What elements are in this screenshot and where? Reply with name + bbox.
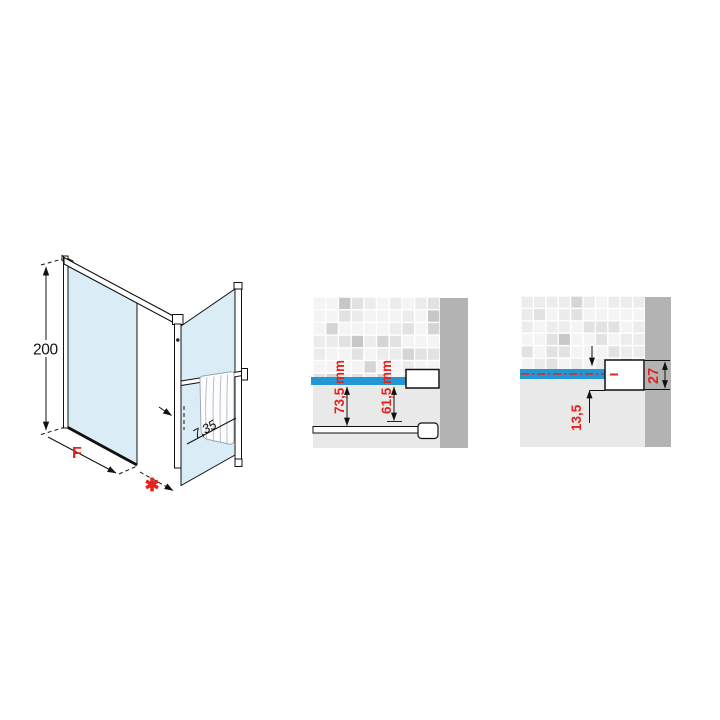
asterisk-marker: ✱	[144, 475, 159, 495]
tile	[534, 334, 545, 345]
tile	[571, 309, 582, 320]
tile	[428, 298, 439, 309]
mosaic-tiles	[522, 297, 645, 370]
tile	[534, 322, 545, 333]
post-profile	[175, 324, 182, 468]
tile	[596, 309, 607, 320]
wall-fixing-detail-diagram: 73,5 mm 61,5 mm	[310, 295, 470, 453]
tile	[403, 310, 414, 321]
dim-offset-label: 13,5	[569, 404, 584, 431]
tile	[314, 336, 325, 347]
tile	[390, 336, 401, 347]
tile	[365, 349, 376, 360]
tile	[621, 322, 632, 333]
tile	[365, 298, 376, 309]
tile	[390, 349, 401, 360]
tile	[547, 346, 558, 357]
tile	[415, 349, 426, 360]
dim-label-inner: 61,5 mm	[379, 360, 394, 414]
tile	[609, 334, 620, 345]
tile	[584, 309, 595, 320]
tile	[571, 322, 582, 333]
dim-label-outer: 73,5 mm	[332, 360, 347, 414]
tile	[314, 323, 325, 334]
tile	[365, 310, 376, 321]
tile	[428, 336, 439, 347]
extension-dimension: ✱	[140, 472, 173, 495]
tile	[571, 346, 582, 357]
tile	[559, 346, 570, 357]
tile	[547, 309, 558, 320]
tile	[314, 361, 325, 372]
screw-dot	[176, 338, 179, 341]
tile	[633, 334, 644, 345]
tile	[584, 334, 595, 345]
tile	[377, 336, 388, 347]
tile	[621, 297, 632, 308]
width-extension-dash	[119, 467, 136, 475]
depth-arrow	[159, 407, 172, 416]
tile	[390, 323, 401, 334]
lower-panel-end-cap	[418, 423, 438, 439]
tile	[559, 322, 570, 333]
tile	[633, 346, 644, 357]
tile	[584, 359, 595, 370]
towel-bar-bracket	[242, 369, 248, 381]
tile	[377, 349, 388, 360]
tile	[314, 310, 325, 321]
tile	[596, 334, 607, 345]
tile	[326, 349, 337, 360]
tile	[547, 359, 558, 370]
tile	[621, 346, 632, 357]
tile	[609, 346, 620, 357]
tile	[339, 323, 350, 334]
tile	[415, 298, 426, 309]
back-post-foot	[235, 459, 242, 467]
tile	[584, 297, 595, 308]
tile	[522, 322, 533, 333]
tile	[390, 298, 401, 309]
tile	[415, 336, 426, 347]
extension-arrow	[167, 487, 173, 491]
tile	[609, 297, 620, 308]
tile	[326, 298, 337, 309]
tile	[352, 349, 363, 360]
tile	[403, 336, 414, 347]
tile	[571, 359, 582, 370]
tile	[522, 359, 533, 370]
tile	[596, 297, 607, 308]
back-post-cap	[234, 283, 242, 290]
tile	[559, 334, 570, 345]
tile	[522, 297, 533, 308]
tile	[377, 310, 388, 321]
tile	[314, 298, 325, 309]
tile	[390, 310, 401, 321]
height-dim-label: 200	[33, 342, 58, 359]
tile	[609, 309, 620, 320]
tile	[534, 297, 545, 308]
tile	[326, 323, 337, 334]
width-dim-label: F	[72, 445, 82, 462]
tile	[339, 336, 350, 347]
tile	[547, 322, 558, 333]
tile	[584, 322, 595, 333]
tile	[596, 346, 607, 357]
tile	[339, 310, 350, 321]
tile	[352, 361, 363, 372]
height-dimension: 200	[32, 259, 64, 435]
tile	[621, 309, 632, 320]
tile	[596, 322, 607, 333]
tile	[352, 298, 363, 309]
tile	[633, 297, 644, 308]
diagram-canvas: 200	[0, 0, 720, 720]
tile	[314, 349, 325, 360]
tile	[609, 322, 620, 333]
tile	[547, 297, 558, 308]
tile	[415, 323, 426, 334]
tile	[365, 323, 376, 334]
tile	[571, 334, 582, 345]
tile	[365, 336, 376, 347]
tile	[534, 309, 545, 320]
wall-section	[440, 298, 468, 448]
tile	[377, 323, 388, 334]
dim-profile-label: 27	[646, 368, 662, 384]
tile	[339, 298, 350, 309]
tile	[352, 310, 363, 321]
tile	[403, 323, 414, 334]
tile	[352, 336, 363, 347]
tile	[522, 309, 533, 320]
rail-end-cap	[173, 315, 184, 325]
tile	[428, 310, 439, 321]
extension-line-top	[41, 259, 64, 266]
profile-detail-diagram: 13,5 27	[518, 294, 683, 452]
wall-profile-left	[64, 256, 69, 428]
tile	[633, 309, 644, 320]
tile	[415, 310, 426, 321]
lower-panel-bar	[313, 427, 418, 434]
tile	[377, 298, 388, 309]
isometric-shower-diagram: 200	[20, 230, 280, 515]
tile	[522, 346, 533, 357]
wall-profile-box	[406, 370, 439, 389]
tile	[559, 309, 570, 320]
tile	[633, 322, 644, 333]
tile	[352, 323, 363, 334]
glass-door-panel	[62, 256, 137, 466]
door-post	[175, 324, 182, 468]
tile	[559, 359, 570, 370]
tile	[403, 349, 414, 360]
tile	[326, 336, 337, 347]
tile	[534, 346, 545, 357]
tile	[339, 349, 350, 360]
tile	[403, 298, 414, 309]
tile	[428, 323, 439, 334]
tile	[326, 310, 337, 321]
tile	[522, 334, 533, 345]
extension-line-bottom	[41, 428, 64, 435]
tile	[547, 334, 558, 345]
tile	[571, 297, 582, 308]
tile	[365, 361, 376, 372]
tile	[559, 297, 570, 308]
tile	[534, 359, 545, 370]
tile	[584, 346, 595, 357]
tile	[428, 349, 439, 360]
tile	[621, 334, 632, 345]
